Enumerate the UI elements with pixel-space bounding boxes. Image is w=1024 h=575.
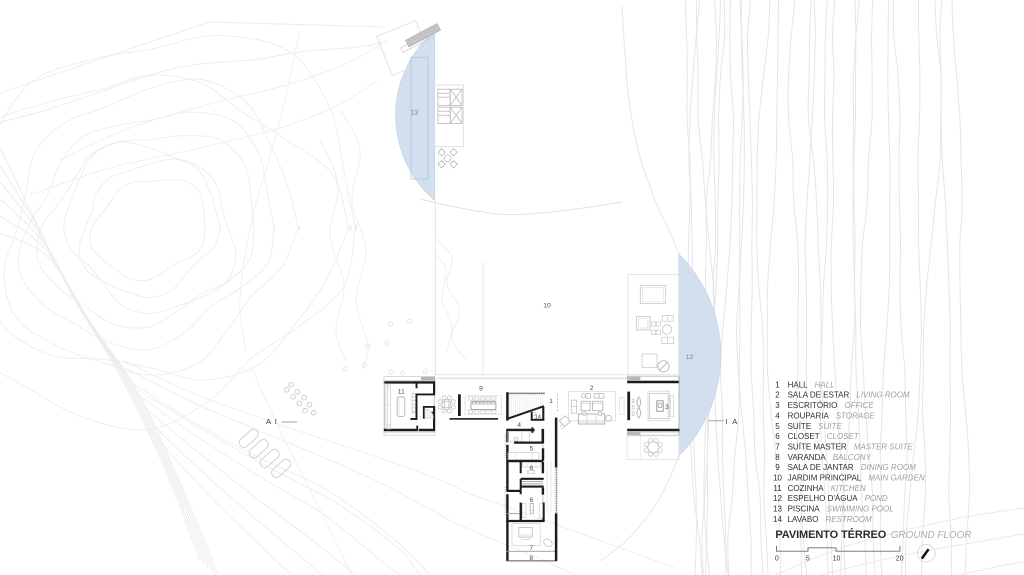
svg-text:7: 7: [529, 545, 533, 552]
svg-text:2: 2: [775, 391, 780, 400]
svg-text:A I: A I: [266, 417, 278, 426]
svg-text:7: 7: [775, 442, 780, 451]
svg-text:5: 5: [806, 556, 810, 563]
svg-text:5: 5: [775, 422, 780, 431]
svg-text:11: 11: [773, 484, 782, 493]
svg-text:ESPELHO D'ÁGUAPOND: ESPELHO D'ÁGUAPOND: [788, 494, 888, 503]
svg-text:PISCINASWIMMING POOL: PISCINASWIMMING POOL: [788, 505, 894, 514]
svg-text:SALA DE ESTARLIVING ROOM: SALA DE ESTARLIVING ROOM: [788, 391, 910, 400]
svg-text:14: 14: [535, 414, 541, 420]
svg-text:8: 8: [775, 453, 780, 462]
svg-text:JARDIM PRINCIPALMAIN GARDEN: JARDIM PRINCIPALMAIN GARDEN: [788, 474, 925, 483]
svg-text:PAVIMENTO TÉRREOGROUND FLOOR: PAVIMENTO TÉRREOGROUND FLOOR: [775, 528, 971, 541]
svg-text:20: 20: [896, 556, 904, 563]
svg-text:I A: I A: [726, 417, 739, 426]
svg-text:11: 11: [398, 389, 405, 396]
svg-text:9: 9: [775, 463, 780, 472]
svg-text:13: 13: [411, 109, 419, 116]
svg-text:10: 10: [543, 303, 551, 310]
svg-text:1: 1: [775, 380, 780, 389]
svg-text:5: 5: [530, 445, 534, 452]
svg-text:LAVABORESTROOM: LAVABORESTROOM: [788, 515, 872, 524]
svg-text:10: 10: [833, 556, 841, 563]
svg-text:4: 4: [775, 411, 780, 420]
svg-text:0: 0: [775, 556, 779, 563]
svg-text:3: 3: [775, 401, 780, 410]
svg-text:12: 12: [773, 494, 782, 503]
svg-text:8: 8: [529, 555, 533, 562]
svg-text:9: 9: [479, 386, 483, 393]
svg-text:2: 2: [590, 385, 594, 392]
svg-text:6: 6: [530, 497, 534, 504]
svg-text:14: 14: [773, 515, 782, 524]
svg-text:3: 3: [665, 404, 669, 411]
svg-text:4: 4: [517, 422, 521, 429]
svg-text:6: 6: [775, 432, 780, 441]
svg-text:10: 10: [773, 474, 782, 483]
svg-text:ESCRITÓRIOOFFICE: ESCRITÓRIOOFFICE: [788, 401, 875, 410]
svg-text:6: 6: [530, 465, 534, 472]
svg-text:1: 1: [549, 398, 553, 405]
svg-text:13: 13: [773, 505, 782, 514]
svg-text:SALA DE JANTARDINING ROOM: SALA DE JANTARDINING ROOM: [788, 463, 917, 472]
svg-text:12: 12: [686, 354, 694, 361]
